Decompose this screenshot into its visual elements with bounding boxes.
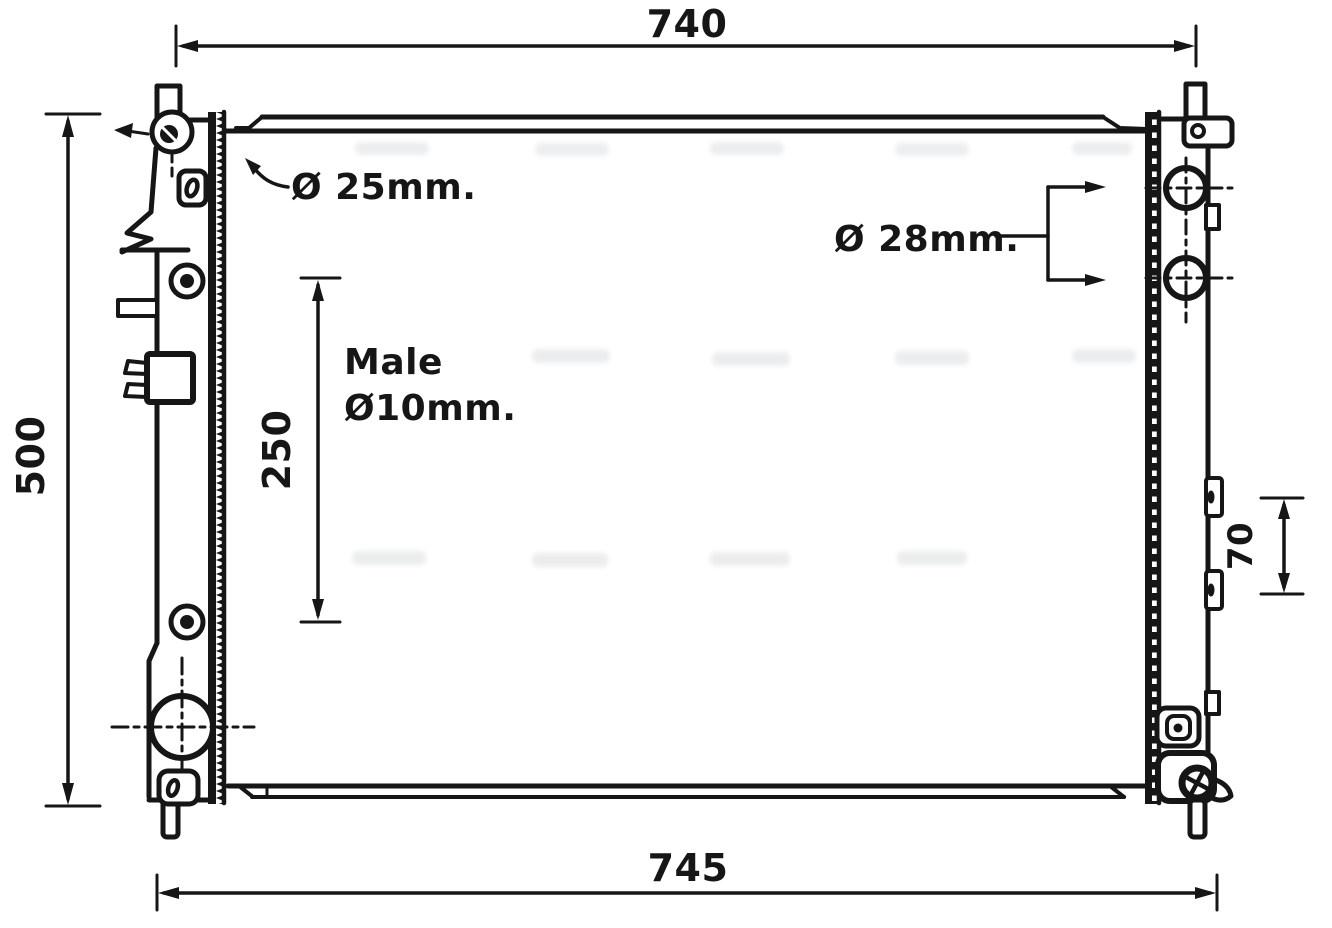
dim-left-height-label: 500 — [9, 416, 53, 497]
callout-inlet-label: Ø 25mm. — [291, 167, 476, 208]
right-side-clip-lower-slot — [1208, 584, 1215, 597]
arrowhead-right — [1174, 40, 1195, 52]
arrowhead-left — [158, 887, 179, 899]
arrowhead-down — [312, 599, 324, 620]
right-side-tab-top — [1206, 205, 1219, 229]
arrowhead-down — [1278, 573, 1290, 593]
right-bottom-pin — [1190, 800, 1205, 837]
core-top-left-step — [236, 117, 262, 128]
dimension-left-height — [46, 114, 100, 806]
arrowhead-up — [312, 280, 324, 301]
watermark-row-middle — [532, 349, 1136, 366]
right-side-tab-bottom — [1206, 692, 1219, 714]
left-top-bolt-boss — [179, 171, 206, 205]
left-bracket-prong-lower — [125, 384, 147, 397]
arrowhead-up — [62, 115, 74, 137]
callout-connector-size: Ø10mm. — [344, 388, 516, 429]
arrowhead-right-lower — [1085, 274, 1106, 286]
watermark-row-top — [355, 142, 1132, 156]
left-bracket-prong-upper — [125, 361, 147, 374]
dimension-inlet-span — [301, 278, 340, 622]
callout-inlet-leader — [245, 158, 288, 187]
callout-ports-label: Ø 28mm. — [834, 219, 1019, 260]
dim-bottom-width-label: 745 — [648, 846, 729, 890]
arrowhead-up — [1278, 499, 1290, 519]
leader-line — [254, 168, 288, 187]
arrowhead-right-upper — [1085, 181, 1106, 193]
left-side-tab — [118, 300, 157, 316]
arrowhead-left — [177, 40, 198, 52]
watermark-row-lower — [352, 551, 967, 567]
right-bottom-bolt-hole — [1174, 724, 1183, 733]
radiator-technical-drawing: 740 745 500 250 70 Ø 25mm. — [0, 0, 1332, 928]
arrowhead-right — [1195, 887, 1216, 899]
right-side-clip-upper-slot — [1208, 491, 1215, 504]
dim-top-width-label: 740 — [647, 2, 728, 46]
lower-grommet-center — [180, 615, 194, 629]
right-top-mount-tab — [1186, 84, 1205, 120]
dim-inlet-span-label: 250 — [255, 410, 299, 491]
callout-connector-type: Male — [344, 342, 443, 383]
left-bracket — [147, 354, 193, 402]
upper-grommet-center — [180, 274, 194, 288]
arrowhead-down — [62, 783, 74, 805]
radiator-core — [208, 112, 1161, 804]
left-tank — [112, 86, 254, 837]
dimension-right-tab-spacing — [1261, 498, 1303, 594]
dim-right-tab-spacing-label: 70 — [1221, 522, 1261, 570]
core-top-right-step — [1103, 117, 1146, 129]
left-tank-upper-profile — [122, 148, 156, 252]
filler-pointer-arrow — [114, 123, 133, 138]
